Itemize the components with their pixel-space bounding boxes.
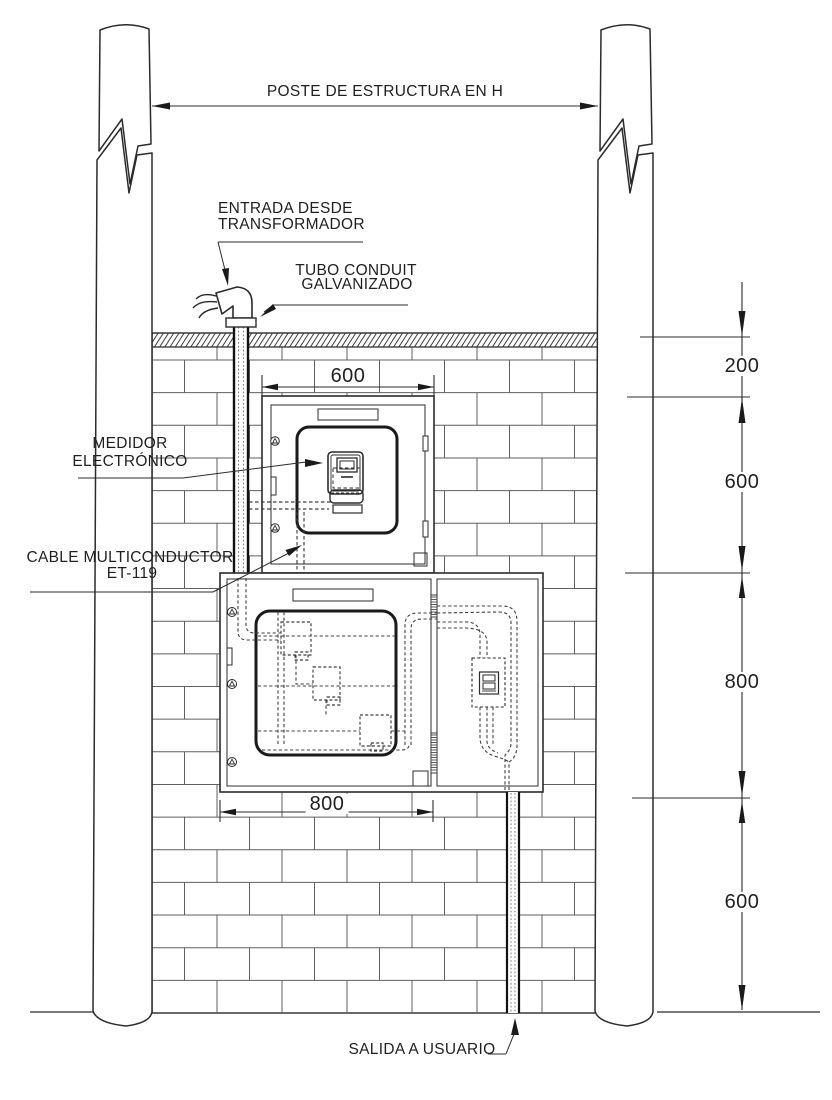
cable-label-line1: CABLE MULTICONDUCTOR — [27, 550, 234, 566]
right-post — [595, 25, 653, 1026]
hinge-slot — [271, 477, 276, 495]
tubo-label-line2: GALVANIZADO — [301, 277, 412, 293]
dimension-posts-width — [152, 103, 598, 110]
salida-label: SALIDA A USUARIO — [349, 1042, 496, 1058]
leader-tubo — [260, 304, 408, 317]
terminal-block — [472, 658, 505, 707]
divider-hinge — [431, 733, 437, 773]
dim-chain-600b: 600 — [721, 892, 764, 912]
divider-hinge — [431, 595, 437, 617]
hinge-slot — [423, 436, 428, 451]
service-conduit — [233, 325, 249, 578]
exit-conduit — [506, 792, 520, 1013]
medidor-label-line1: MEDIDOR — [92, 436, 167, 452]
left-post — [93, 25, 152, 1026]
medidor-label-line2: ELECTRÓNICO — [72, 454, 187, 470]
dim-chain-800: 800 — [721, 672, 764, 692]
dim-600-top: 600 — [331, 366, 366, 386]
distribution-cabinet — [220, 573, 543, 792]
dim-chain-200: 200 — [721, 356, 764, 376]
right-post-lower — [595, 128, 653, 1026]
entrada-label-line1: ENTRADA DESDE — [218, 201, 353, 217]
technical-drawing-page: POSTE DE ESTRUCTURA EN H ENTRADA DESDE T… — [0, 0, 832, 1100]
hinge-slot — [227, 648, 232, 665]
meter-cabinet — [249, 396, 434, 601]
hinge-slot — [423, 521, 428, 537]
posts-width-label: POSTE DE ESTRUCTURA EN H — [267, 84, 503, 100]
conduit-elbow — [193, 287, 256, 327]
cable-label-line2: ET-119 — [107, 566, 158, 582]
entrada-label-line2: TRANSFORMADOR — [218, 217, 365, 233]
dim-chain-600a: 600 — [721, 472, 764, 492]
incoming-wires — [193, 295, 218, 318]
conduit-coupling — [226, 318, 256, 327]
dim-800-bottom: 800 — [306, 794, 349, 814]
